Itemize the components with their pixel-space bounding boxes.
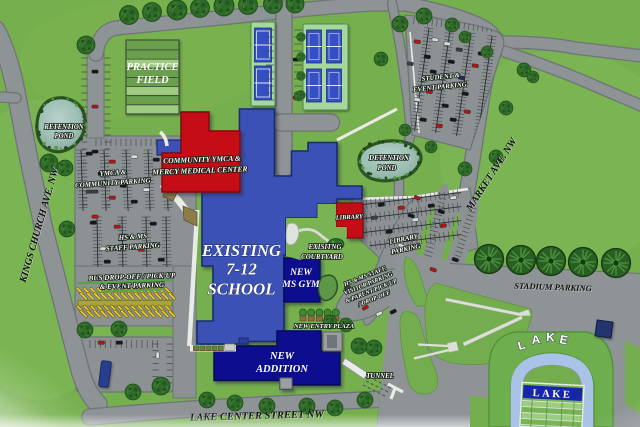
svg-text:A: A	[531, 332, 541, 347]
svg-text:NEW: NEW	[289, 268, 312, 278]
svg-text:POND: POND	[55, 133, 74, 140]
svg-text:NEW: NEW	[269, 351, 295, 362]
svg-text:DETENTION: DETENTION	[368, 155, 410, 162]
svg-text:RETENTION: RETENTION	[43, 124, 84, 131]
svg-text:EXISITNG: EXISITNG	[307, 243, 341, 251]
svg-text:SCHOOL: SCHOOL	[207, 280, 275, 299]
svg-text:LAKE: LAKE	[532, 388, 572, 401]
svg-text:FIELD: FIELD	[135, 75, 169, 86]
svg-text:ADDITION: ADDITION	[255, 364, 308, 375]
svg-text:7-12: 7-12	[226, 260, 257, 279]
svg-text:NEW ENTRY PLAZA: NEW ENTRY PLAZA	[293, 323, 355, 330]
svg-text:PRACTICE: PRACTICE	[127, 62, 179, 73]
svg-text:K: K	[546, 330, 556, 344]
svg-text:EXISTING: EXISTING	[201, 241, 281, 260]
svg-text:MS GYM: MS GYM	[281, 280, 320, 290]
svg-text:POND: POND	[378, 165, 397, 172]
svg-text:TUNNEL: TUNNEL	[366, 373, 394, 380]
svg-text:COURTYARD: COURTYARD	[301, 253, 343, 261]
